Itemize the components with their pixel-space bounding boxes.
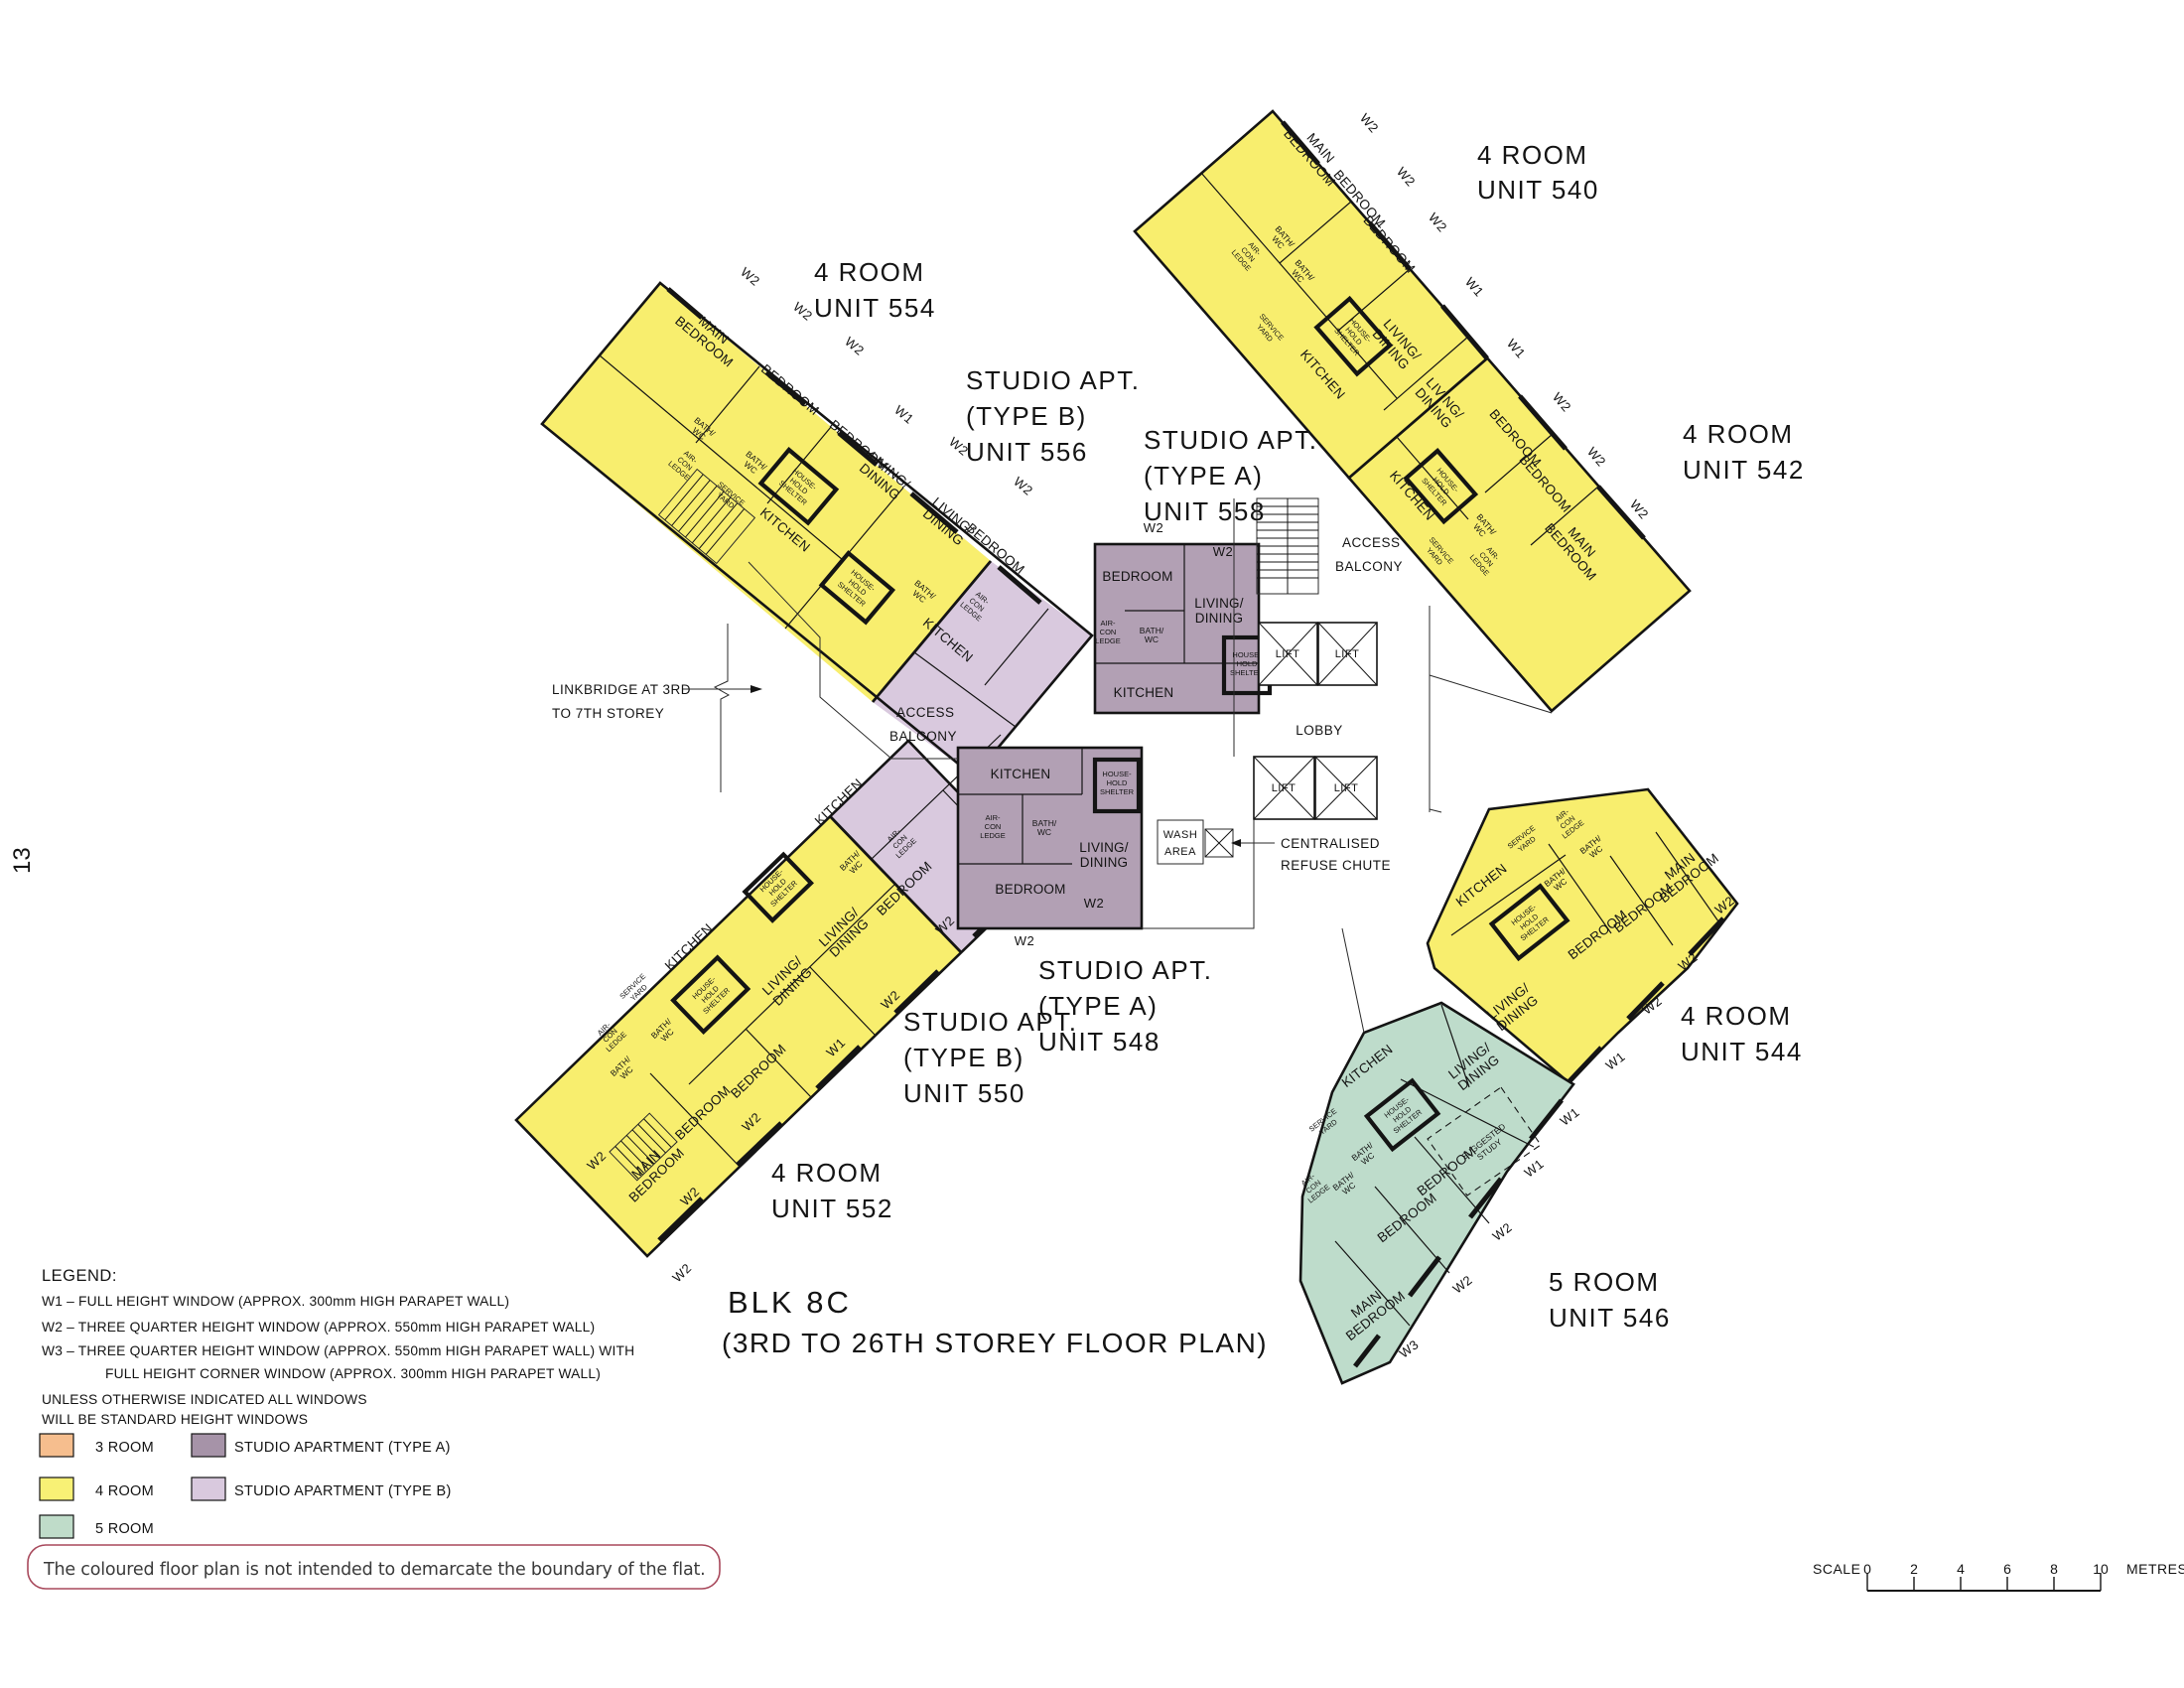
lift-label: LIFT (1334, 782, 1359, 794)
room-label: HOLD (1107, 778, 1128, 787)
unit-title-558: (TYPE A) (1144, 461, 1263, 491)
linkbridge-label: LINKBRIDGE AT 3RD (552, 682, 691, 697)
legend-heading: LEGEND: (42, 1267, 117, 1285)
unit-title-558: STUDIO APT. (1144, 425, 1317, 455)
corridor-line (1430, 809, 1441, 812)
window-tag: W1 (1462, 274, 1487, 299)
unit-558: BEDROOM LIVING/ DINING KITCHEN BATH/ WC … (1095, 520, 1270, 713)
room-label: KITCHEN (1114, 685, 1174, 700)
unit-title-540: 4 ROOM (1477, 140, 1588, 170)
swatch-label-3-room: 3 ROOM (95, 1440, 154, 1456)
unit-title-552: 4 ROOM (771, 1158, 883, 1188)
wing-546: KITCHEN LIVING/DINING SERVICEYARD HOUSE-… (1296, 1003, 1573, 1383)
access-balcony-label: ACCESS (1342, 535, 1401, 550)
access-balcony-label: BALCONY (1335, 559, 1403, 574)
window-tag: W2 (1394, 164, 1419, 189)
refuse-chute-label: CENTRALISED (1281, 836, 1380, 851)
unit-title-544: 4 ROOM (1681, 1001, 1792, 1031)
window-tag-text: W2 (1426, 210, 1450, 234)
swatch-studio-b (192, 1477, 225, 1500)
legend-w3: W3 – THREE QUARTER HEIGHT WINDOW (APPROX… (42, 1343, 634, 1358)
room-label: HOLD (1237, 659, 1258, 668)
room-label: LIVING/ (1194, 596, 1243, 611)
lift-label: LIFT (1272, 782, 1297, 794)
legend-note: WILL BE STANDARD HEIGHT WINDOWS (42, 1412, 308, 1427)
room-label: AIR- (1101, 619, 1117, 628)
window-tag-text: W1 (1603, 1049, 1628, 1072)
scale-tick-label: 8 (2050, 1561, 2058, 1577)
window-tag: W2 (1627, 496, 1652, 521)
swatch-5-room (40, 1515, 73, 1538)
window-tag-text: W2 (1394, 164, 1419, 189)
page-number: 13 (9, 847, 36, 874)
room-label: AIR- (986, 813, 1002, 822)
floor-plan-canvas: MAIN BEDROOM BEDROOM BEDROOM LIVING/ DIN… (0, 0, 2184, 1688)
wing-554-556: MAIN BEDROOM BEDROOM BEDROOM LIVING/ DIN… (542, 264, 1092, 776)
drawing-title: BLK 8C (3RD TO 26TH STOREY FLOOR PLAN) (722, 1285, 1268, 1358)
window-tag: W2 (1490, 1219, 1515, 1243)
unit-title-540: UNIT 540 (1477, 175, 1599, 205)
window-tag: W2 (738, 264, 762, 289)
window-tag: W2 (1550, 389, 1574, 414)
window-tag: W2 (1450, 1272, 1475, 1296)
window-tag-text: W1 (1558, 1104, 1582, 1128)
disclaimer-text: The coloured floor plan is not intended … (43, 1560, 706, 1580)
legend-note: UNLESS OTHERWISE INDICATED ALL WINDOWS (42, 1392, 367, 1407)
unit-title-558: UNIT 558 (1144, 496, 1266, 526)
window-tag-text: W2 (1490, 1219, 1515, 1243)
window-tag: W1 (891, 402, 916, 427)
room-label: SHELTER (1100, 787, 1135, 796)
window-tag-text: W2 (738, 264, 762, 289)
room-label: HOUSE- (1102, 770, 1132, 778)
window-tag-text: W2 (790, 299, 815, 324)
lift-icon: LIFT (1318, 623, 1377, 685)
break-line (715, 624, 729, 792)
room-label: HOUSE- (1232, 650, 1262, 659)
window-tag: W2 (1584, 444, 1609, 469)
legend-w2: W2 – THREE QUARTER HEIGHT WINDOW (APPROX… (42, 1320, 595, 1335)
block-title: BLK 8C (728, 1285, 852, 1320)
legend: LEGEND: W1 – FULL HEIGHT WINDOW (APPROX.… (28, 1267, 720, 1589)
swatch-studio-a (192, 1434, 225, 1457)
unit-title-546: 5 ROOM (1549, 1267, 1660, 1297)
room-label: LIVING/ (1079, 840, 1128, 855)
linkbridge-label: TO 7TH STOREY (552, 706, 664, 721)
window-tag-text: W2 (1450, 1272, 1475, 1296)
room-label: LEDGE (980, 831, 1005, 840)
refuse-chute-icon (1205, 829, 1233, 857)
wash-area-label: WASH (1163, 829, 1198, 841)
window-tag-text: W2 (1357, 110, 1382, 135)
window-tag: W2 (842, 334, 867, 358)
room-label: LEDGE (1095, 636, 1120, 645)
unit-title-556: STUDIO APT. (966, 365, 1140, 395)
unit-title-550: STUDIO APT. (903, 1007, 1077, 1037)
swatch-4-room (40, 1477, 73, 1500)
window-tag: W2 (1357, 110, 1382, 135)
storey-title: (3RD TO 26TH STOREY FLOOR PLAN) (722, 1328, 1268, 1358)
scale-label: SCALE (1813, 1561, 1860, 1577)
room-label: KITCHEN (991, 767, 1051, 781)
refuse-chute-label: REFUSE CHUTE (1281, 858, 1391, 873)
room-label: DINING (1195, 611, 1243, 626)
room-label: BEDROOM (995, 882, 1065, 897)
lift-icon: LIFT (1259, 623, 1317, 685)
lift-label: LIFT (1335, 648, 1360, 660)
lift-label: LIFT (1276, 648, 1300, 660)
unit-title-556: UNIT 556 (966, 437, 1088, 467)
access-balcony-label: ACCESS (896, 705, 955, 720)
room-label: BEDROOM (1102, 569, 1172, 584)
window-tag-text: W2 (1015, 933, 1035, 948)
window-tag-text: W1 (1462, 274, 1487, 299)
unit-title-542: UNIT 542 (1683, 455, 1805, 485)
page-number-text: 13 (9, 847, 36, 874)
legend-w1: W1 – FULL HEIGHT WINDOW (APPROX. 300mm H… (42, 1294, 509, 1309)
room-label: WC (1037, 827, 1051, 837)
unit-title-550: UNIT 550 (903, 1078, 1025, 1108)
scale-tick-label: 2 (1910, 1561, 1918, 1577)
room-label: DINING (1080, 855, 1128, 870)
unit-title-544: UNIT 544 (1681, 1037, 1803, 1066)
window-tag-text: W1 (1504, 336, 1529, 360)
scale-unit: METRES (2126, 1561, 2184, 1577)
room-label: WC (1145, 634, 1159, 644)
window-tag-text: W2 (1011, 474, 1035, 498)
room-label: CON (985, 822, 1002, 831)
lift-icon: LIFT (1315, 757, 1377, 819)
window-tag-text: W2 (1084, 896, 1105, 911)
window-tag-text: W2 (669, 1260, 694, 1285)
swatch-label-studio-b: STUDIO APARTMENT (TYPE B) (234, 1483, 452, 1499)
unit-title-548: STUDIO APT. (1038, 955, 1212, 985)
stairs-icon (1257, 498, 1318, 594)
swatch-3-room (40, 1434, 73, 1457)
unit-title-554: UNIT 554 (814, 293, 936, 323)
window-tag: W1 (1504, 336, 1529, 360)
unit-title-552: UNIT 552 (771, 1194, 893, 1223)
unit-title-556: (TYPE B) (966, 401, 1087, 431)
swatch-label-4-room: 4 ROOM (95, 1483, 154, 1499)
corridor-line (1342, 928, 1364, 1033)
unit-title-542: 4 ROOM (1683, 419, 1794, 449)
window-tag: W1 (1522, 1156, 1547, 1180)
window-tag: W1 (1558, 1104, 1582, 1128)
linkbridge-break-icon (715, 624, 729, 792)
unit-title-554: 4 ROOM (814, 257, 925, 287)
unit-title-546: UNIT 546 (1549, 1303, 1671, 1333)
window-tag: W2 (669, 1260, 694, 1285)
legend-w3-cont: FULL HEIGHT CORNER WINDOW (APPROX. 300mm… (105, 1366, 601, 1381)
lobby-label: LOBBY (1296, 723, 1343, 738)
window-tag: W1 (1603, 1049, 1628, 1072)
linkbridge-arrow-head (751, 685, 762, 693)
unit-554-floor (542, 283, 991, 702)
window-tag: W2 (790, 299, 815, 324)
unit-548: KITCHEN HOUSE- HOLD SHELTER BATH/ WC AIR… (958, 748, 1142, 948)
floor-plan-page: MAIN BEDROOM BEDROOM BEDROOM LIVING/ DIN… (0, 0, 2184, 1688)
room-label: CON (1100, 628, 1117, 636)
window-tag-text: W2 (1627, 496, 1652, 521)
window-tag: W2 (1426, 210, 1450, 234)
window-tag-text: W2 (1584, 444, 1609, 469)
scale-bar: SCALE 0 2 4 6 8 10 METRES (1813, 1561, 2184, 1591)
window-tag-text: W1 (1522, 1156, 1547, 1180)
window-tag: W2 (1011, 474, 1035, 498)
scale-tick-label: 6 (2003, 1561, 2011, 1577)
wash-area-label: AREA (1164, 846, 1196, 858)
window-tag-text: W2 (1213, 544, 1234, 559)
swatch-label-5-room: 5 ROOM (95, 1521, 154, 1537)
window-tag-text: W2 (1550, 389, 1574, 414)
window-tag-text: W2 (842, 334, 867, 358)
corridor-line (1142, 819, 1254, 928)
unit-title-550: (TYPE B) (903, 1043, 1024, 1072)
lift-icon: LIFT (1254, 757, 1314, 819)
window-tag-text: W1 (891, 402, 916, 427)
scale-tick-label: 4 (1957, 1561, 1965, 1577)
access-balcony-label: BALCONY (889, 729, 957, 744)
swatch-label-studio-a: STUDIO APARTMENT (TYPE A) (234, 1440, 451, 1456)
